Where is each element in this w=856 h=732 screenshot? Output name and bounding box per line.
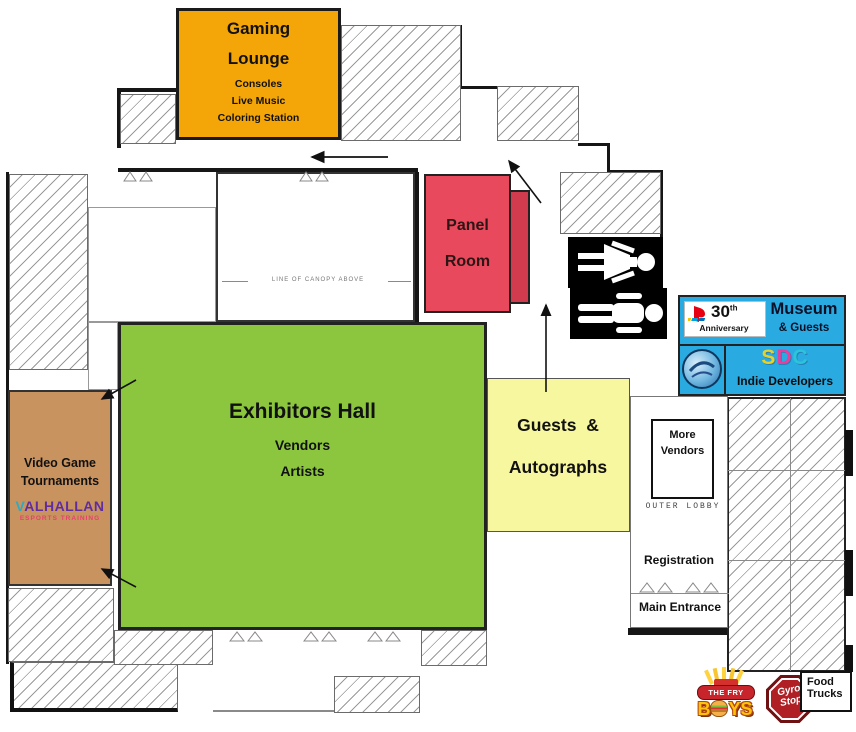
hatched-area (120, 94, 176, 144)
interior-line (790, 398, 791, 671)
hatched-area (560, 172, 661, 234)
wall-segment (118, 88, 180, 92)
panel-room-line-2: Room (445, 253, 490, 271)
gaming-lounge-feature: Live Music (232, 95, 286, 107)
panel-room-annex (508, 190, 530, 304)
fry-boys-banner: THE FRY (697, 685, 755, 700)
hatched-area (114, 630, 213, 665)
more-vendors-line-1: More (669, 429, 695, 441)
museum-title: Museum (764, 300, 844, 319)
gaming-lounge-title-2: Lounge (228, 49, 289, 69)
wall-segment (459, 86, 500, 89)
indie-developers-label: Indie Developers (726, 374, 844, 388)
tournaments-line-1: Video Game (10, 456, 110, 470)
food-trucks-line-1: Food (807, 676, 850, 688)
women-restroom-icon (568, 237, 663, 288)
exhibitors-hall-feature: Artists (121, 463, 484, 479)
interior-line (728, 560, 845, 561)
main-entrance-label: Main Entrance (630, 600, 730, 614)
room-video-game-tournaments: Video Game Tournaments VALHALLAN ESPORTS… (8, 390, 112, 586)
hatched-area (497, 86, 579, 141)
interior-line (728, 470, 845, 471)
fry-boys-logo: THE FRY BYS (686, 666, 764, 730)
room-gaming-lounge: Gaming Lounge Consoles Live Music Colori… (176, 8, 341, 140)
guests-line-2: Autographs (488, 457, 628, 478)
interior-line (631, 593, 729, 594)
gaming-lounge-title-1: Gaming (227, 19, 290, 39)
wall-notch (845, 550, 853, 596)
room-guests-autographs: Guests & Autographs (487, 378, 630, 532)
wall-notch (845, 430, 853, 476)
playstation-30th-badge: 30th Anniversary (684, 301, 766, 337)
canopy-room: LINE OF CANOPY ABOVE (216, 172, 415, 322)
room-museum-indie: 30th Anniversary Museum & Guests SDC Ind… (678, 295, 846, 396)
valhallan-tagline: ESPORTS TRAINING (10, 515, 110, 522)
exhibitors-hall-feature: Vendors (121, 437, 484, 453)
panel-room-line-1: Panel (446, 217, 489, 235)
tournaments-line-2: Tournaments (10, 474, 110, 488)
exhibitors-hall-title: Exhibitors Hall (121, 400, 484, 424)
wall-notch (845, 645, 853, 672)
hatched-area (9, 174, 88, 370)
convention-floor-plan: LINE OF CANOPY ABOVE Gaming Lounge Conso… (0, 0, 856, 732)
entrance-wall (628, 628, 732, 635)
side-room (88, 207, 216, 322)
more-vendors-box: More Vendors (651, 419, 714, 499)
wall-segment (415, 172, 419, 322)
room-exhibitors-hall: Exhibitors Hall Vendors Artists (118, 322, 487, 630)
hatched-area (10, 662, 178, 712)
fry-boys-word: BYS (686, 699, 764, 720)
sdc-logo: SDC (726, 346, 844, 370)
side-room (88, 322, 118, 390)
food-trucks-box: Food Trucks (800, 671, 852, 712)
hatched-area (421, 630, 487, 666)
hatched-area (341, 25, 461, 141)
playstation-logo-icon (688, 305, 708, 323)
restroom-women (568, 237, 663, 288)
playstation-30th-number: 30th (711, 302, 737, 322)
burger-icon (710, 700, 728, 717)
gaming-lounge-feature: Consoles (235, 78, 282, 90)
gaming-lounge-feature: Coloring Station (218, 112, 300, 124)
men-restroom-icon (570, 288, 667, 339)
more-vendors-line-2: Vendors (661, 445, 704, 457)
canopy-note: LINE OF CANOPY ABOVE (248, 277, 388, 283)
restroom-men (570, 288, 667, 339)
wall-segment (578, 143, 610, 146)
room-panel: Panel Room (424, 174, 511, 313)
registration-label: Registration (632, 553, 726, 567)
outer-lobby-label: OUTER LOBBY (640, 502, 726, 511)
hatched-area (8, 588, 114, 662)
food-trucks-line-2: Trucks (807, 688, 850, 700)
round-vg-badge-icon (682, 349, 722, 389)
playstation-anniversary-label: Anniversary (685, 323, 763, 333)
valhallan-logo: VALHALLAN (10, 498, 110, 514)
hatched-area (334, 676, 420, 713)
museum-subtitle: & Guests (764, 322, 844, 334)
guests-line-1: Guests & (488, 415, 628, 436)
wall-segment (607, 143, 610, 173)
hatched-area-right-wing (727, 397, 846, 672)
